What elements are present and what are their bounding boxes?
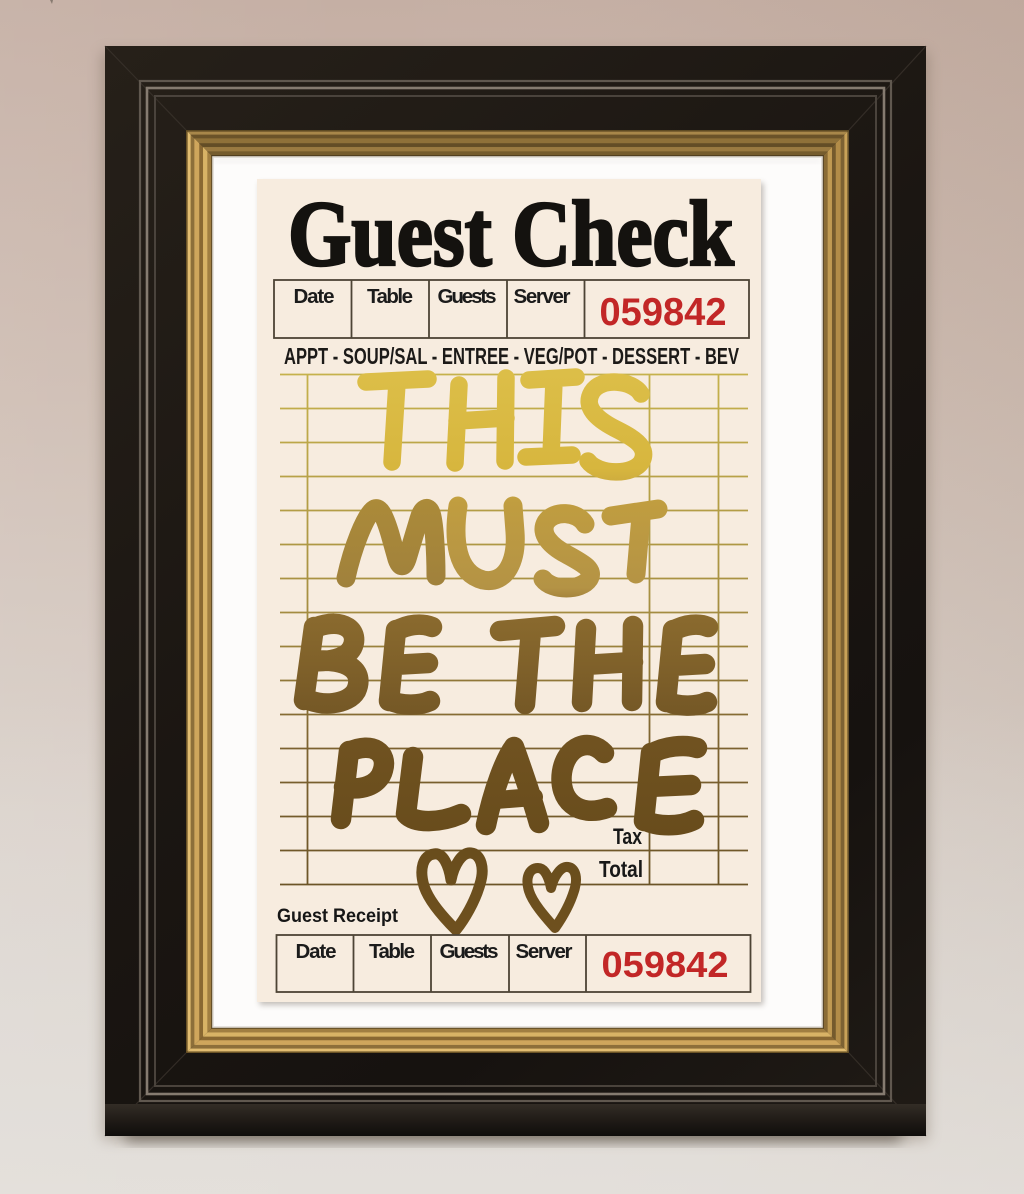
svg-text:Date: Date bbox=[294, 285, 335, 308]
svg-text:Date: Date bbox=[296, 940, 337, 963]
svg-text:Table: Table bbox=[369, 940, 415, 963]
svg-text:Server: Server bbox=[514, 285, 571, 308]
svg-text:APPT - SOUP/SAL - ENTREE - VEG: APPT - SOUP/SAL - ENTREE - VEG/POT - DES… bbox=[284, 343, 739, 369]
svg-text:Tax: Tax bbox=[613, 824, 643, 849]
svg-text:059842: 059842 bbox=[602, 944, 729, 985]
svg-text:Server: Server bbox=[516, 940, 573, 963]
svg-text:Total: Total bbox=[599, 856, 643, 882]
svg-text:Guests: Guests bbox=[440, 940, 499, 963]
svg-text:Guests: Guests bbox=[438, 285, 497, 308]
svg-text:Table: Table bbox=[367, 285, 413, 308]
svg-text:Guest Receipt: Guest Receipt bbox=[277, 905, 398, 927]
svg-text:059842: 059842 bbox=[600, 291, 727, 334]
svg-text:Guest Check: Guest Check bbox=[288, 183, 734, 286]
